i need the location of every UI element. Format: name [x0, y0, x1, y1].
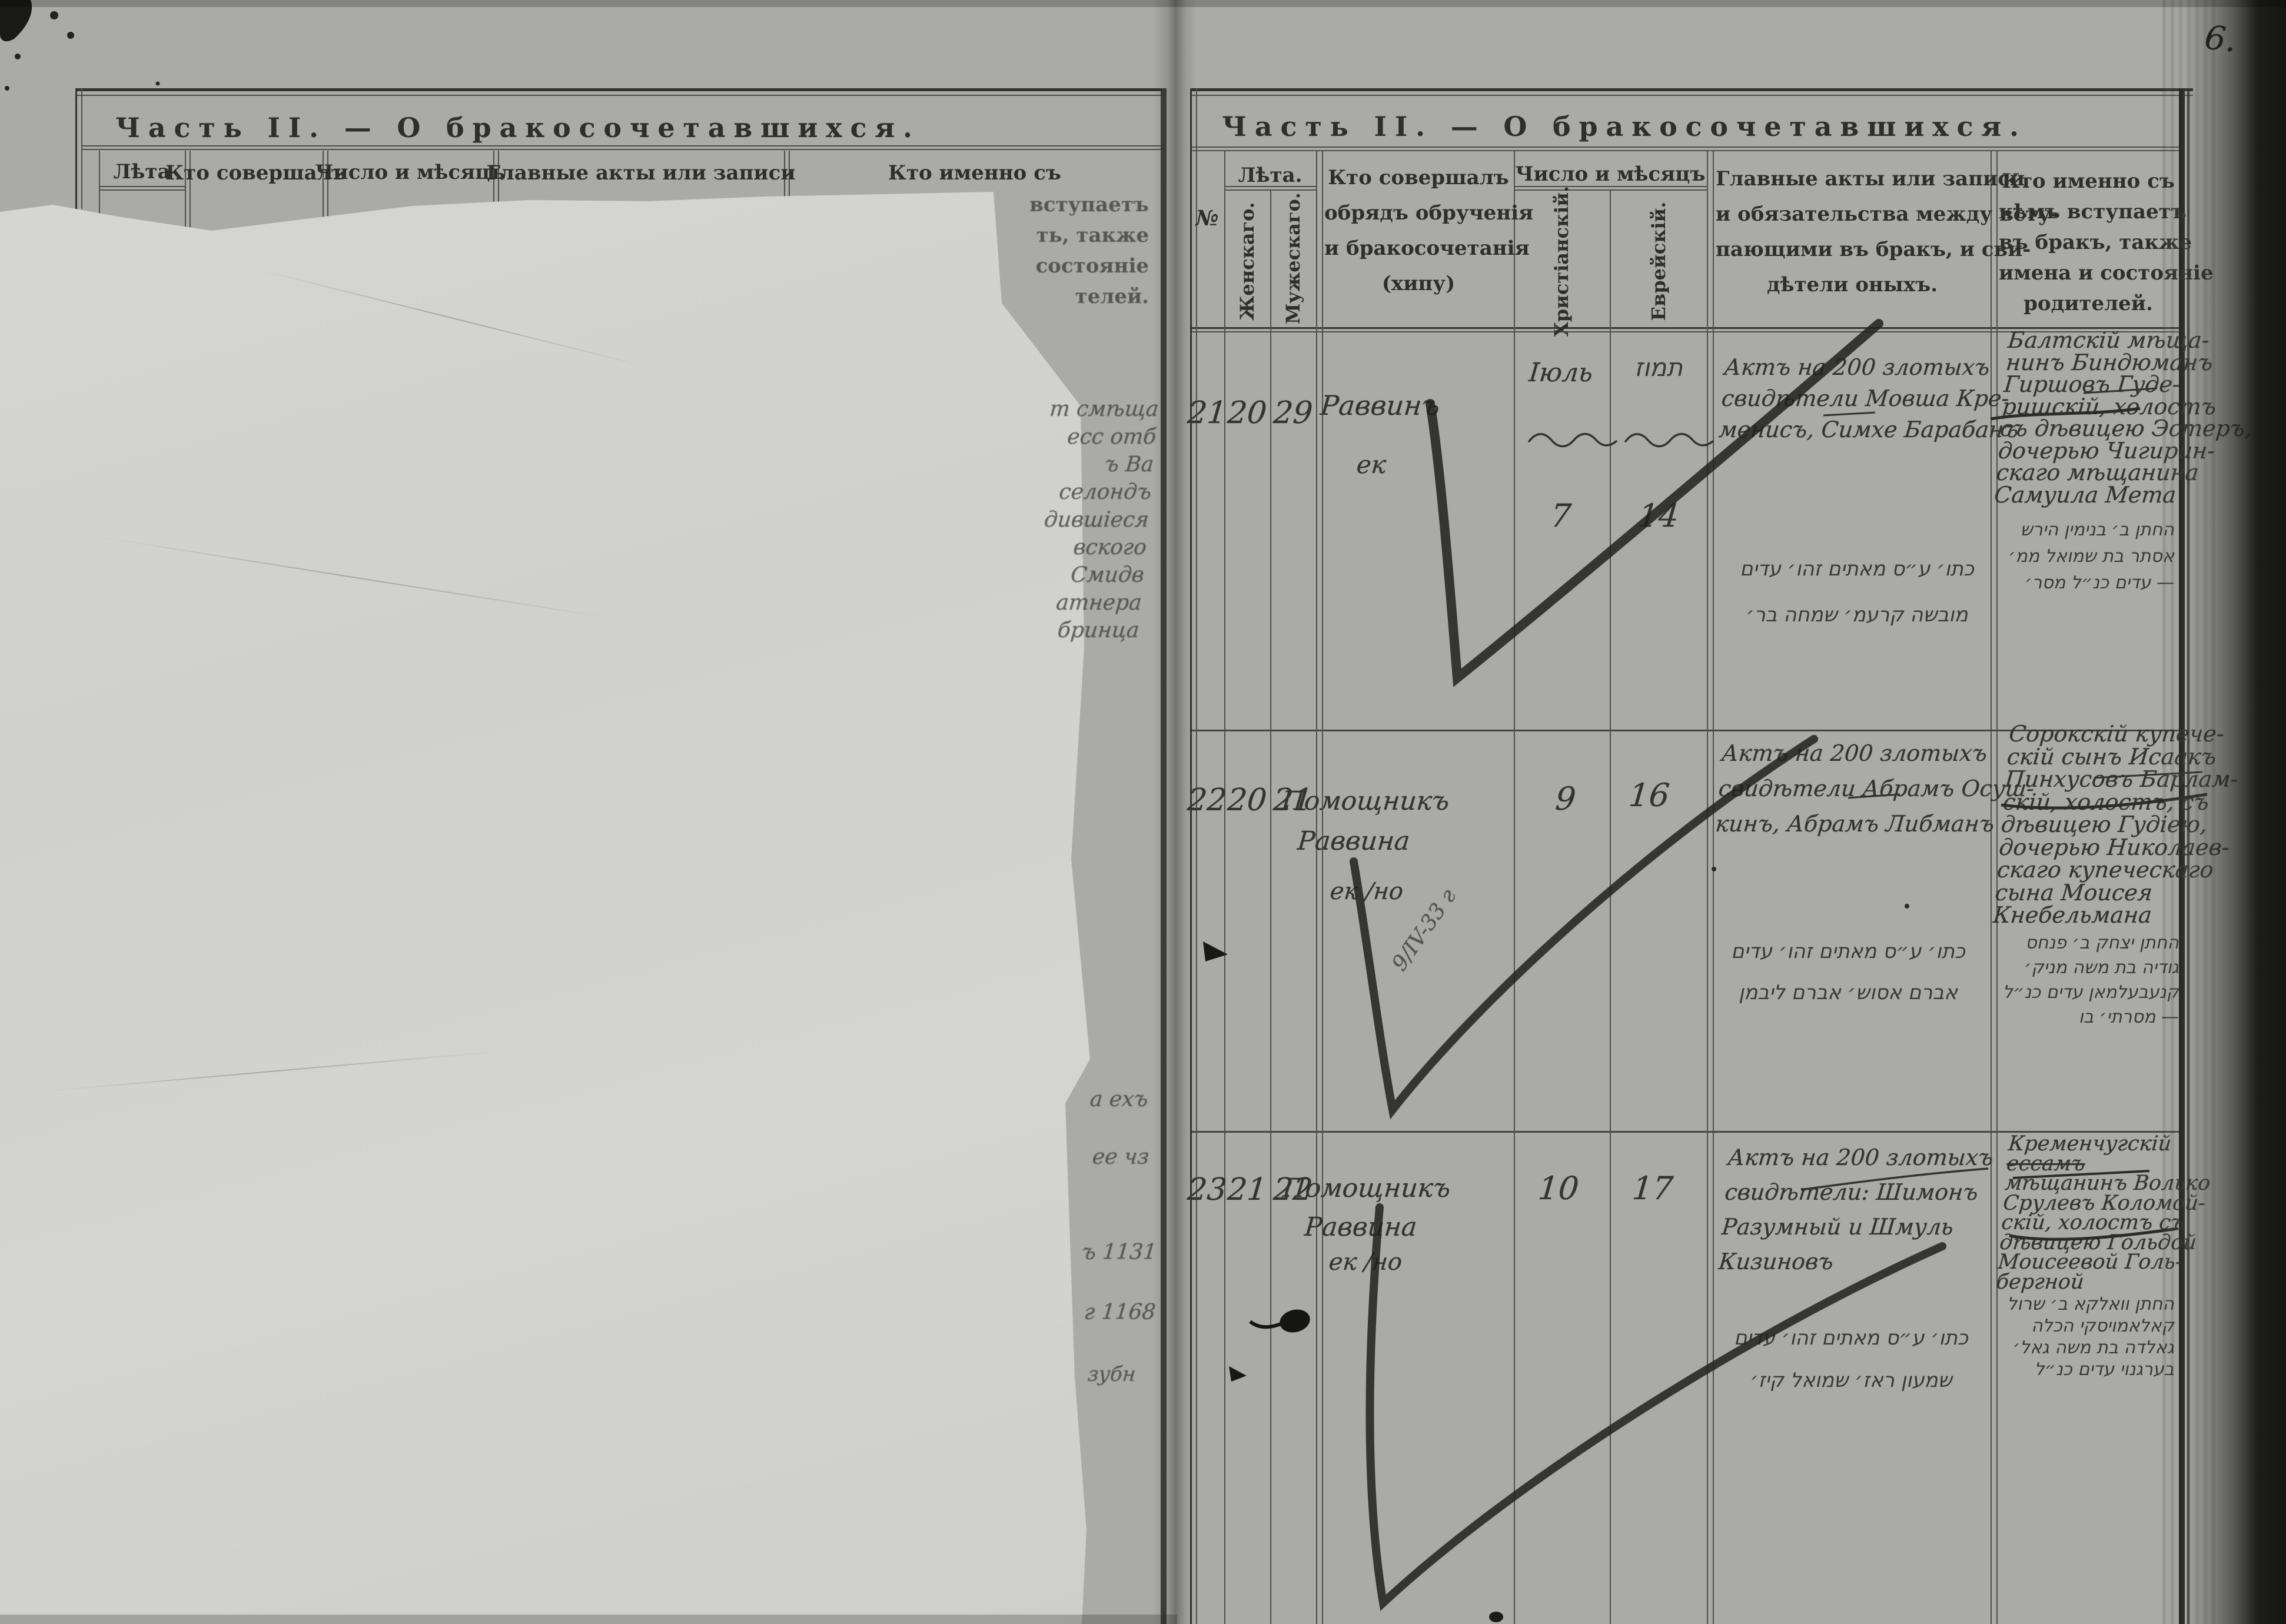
covered-column-header-tail: вступаетъ ть, также состояніе телей. [1001, 189, 1149, 312]
left-col-acts: Главные акты или записи [486, 158, 795, 188]
row-officiant-2: Раввина [1303, 1212, 1418, 1242]
col-who: Кто именно съ кѣмъ вступаетъ въ бракъ, т… [1999, 166, 2178, 319]
folio-number: 6. [2203, 18, 2238, 59]
scanned-registry-photo: Часть II. — О бракосочетавшихся. Лѣта Кт… [0, 0, 2286, 1624]
col-jewish: Еврейскій. [1647, 185, 1670, 338]
acts-entry: Актъ на 200 злотыхъ свидѣтели: Шимонъ Ра… [1717, 1140, 1995, 1279]
corner-blotch [67, 32, 74, 39]
row-officiant: Помощникъ [1281, 1173, 1451, 1203]
row-female-age: 21 [1226, 1172, 1268, 1207]
day-christian: 10 [1537, 1170, 1580, 1207]
col-date: Число и мѣсяцъ [1516, 159, 1706, 189]
day-jewish: 16 [1627, 777, 1671, 814]
book-binding-edge [2184, 0, 2286, 1624]
day-jewish: 14 [1637, 497, 1680, 534]
day-christian: 9 [1554, 780, 1577, 817]
row-female-age: 20 [1226, 395, 1268, 431]
row-male-age: 29 [1272, 395, 1314, 431]
squiggle-underline [1626, 434, 1713, 447]
row-officiant-2: Раввина [1296, 826, 1411, 856]
left-col-leta: Лѣта [113, 157, 170, 187]
acts-hebrew: כתו׳ ע״ס מאתים זהו׳ עדים מובשה קרעמ׳ שמח… [1733, 546, 1981, 638]
photo-top-edge [0, 0, 2286, 7]
acts-hebrew: כתו׳ ע״ס מאתים זהו׳ עדים שמעון ראז׳ שמוא… [1727, 1317, 1975, 1402]
left-col-date: Число и мѣсяцъ [315, 157, 506, 188]
row-female-age: 20 [1226, 783, 1268, 818]
month-jewish: תמוז [1634, 353, 1683, 382]
ink-dot [156, 82, 160, 86]
col-christian: Христіанскій. [1550, 185, 1573, 338]
covered-fragment: г 1168 [1083, 1300, 1157, 1325]
left-col-who: Кто именно съ [888, 158, 1061, 188]
officiant-flourish: ек [1355, 450, 1387, 479]
col-acts: Главные акты или записи и обязательства … [1716, 161, 1989, 302]
ink-blot [1250, 1322, 1281, 1327]
who-hebrew: החתן יצחק ב׳ פנחס גודיה בת משה מניק׳ קנע… [1996, 931, 2179, 1030]
col-female: Женскаго. [1236, 185, 1258, 338]
covered-fragment: а ехъ [1089, 1087, 1149, 1111]
row-no: 21 [1186, 395, 1228, 431]
row-officiant: Раввинъ [1319, 390, 1441, 421]
squiggle-underline [1529, 434, 1616, 447]
ink-blot [1277, 1306, 1313, 1335]
right-page-title: Часть II. — О бракосочетавшихся. [1222, 111, 2027, 142]
ink-blot [1489, 1612, 1503, 1622]
row-officiant: Помощникъ [1280, 786, 1450, 816]
who-hebrew: החתן ב׳ בנימין הירש אסתר בת שמואל ממ׳ — … [1998, 517, 2174, 596]
col-officiant: Кто совершалъ обрядъ обрученія и бракосо… [1324, 160, 1513, 301]
row-no: 22 [1186, 783, 1228, 818]
corner-blotch [5, 86, 9, 91]
covered-fragment: ее чз [1091, 1145, 1150, 1169]
officiant-flourish: ек /но [1329, 878, 1404, 905]
covered-fragment: зубн [1086, 1363, 1137, 1386]
who-hebrew: החתן וואלקא ב׳ שרול קאלאמויסקי הכלה גאלד… [1998, 1293, 2174, 1380]
acts-hebrew: כתו׳ ע״ס מאתים זהו׳ עדים אברם אסוש׳ אברם… [1725, 931, 1972, 1013]
col-no: № [1195, 206, 1218, 231]
covered-fragment: ъ 1131 [1081, 1240, 1158, 1264]
corner-blotch [15, 54, 21, 59]
ink-speck [1229, 1366, 1247, 1382]
col-male: Мужескаго. [1282, 182, 1304, 335]
month-christian: Іюль [1528, 358, 1594, 388]
officiant-flourish: ек /но [1328, 1249, 1403, 1276]
day-jewish: 17 [1631, 1170, 1674, 1207]
ink-dot [1905, 904, 1909, 908]
day-christian: 7 [1549, 497, 1573, 534]
acts-entry: Актъ на 200 злотыхъ свидѣтели Абрамъ Осу… [1714, 736, 2039, 841]
covered-handwriting-fragments: т смѣща есс отб ъ Ва селондъ дившіеся вс… [983, 395, 1159, 644]
acts-entry: Актъ на 200 злотыхъ свидѣтели Мовша Кре-… [1717, 352, 2025, 445]
corner-blotch [50, 11, 58, 19]
row-no: 23 [1186, 1172, 1228, 1207]
left-page-title: Часть II. — О бракосочетавшихся. [115, 112, 921, 144]
photo-bottom-edge [0, 1615, 1177, 1624]
